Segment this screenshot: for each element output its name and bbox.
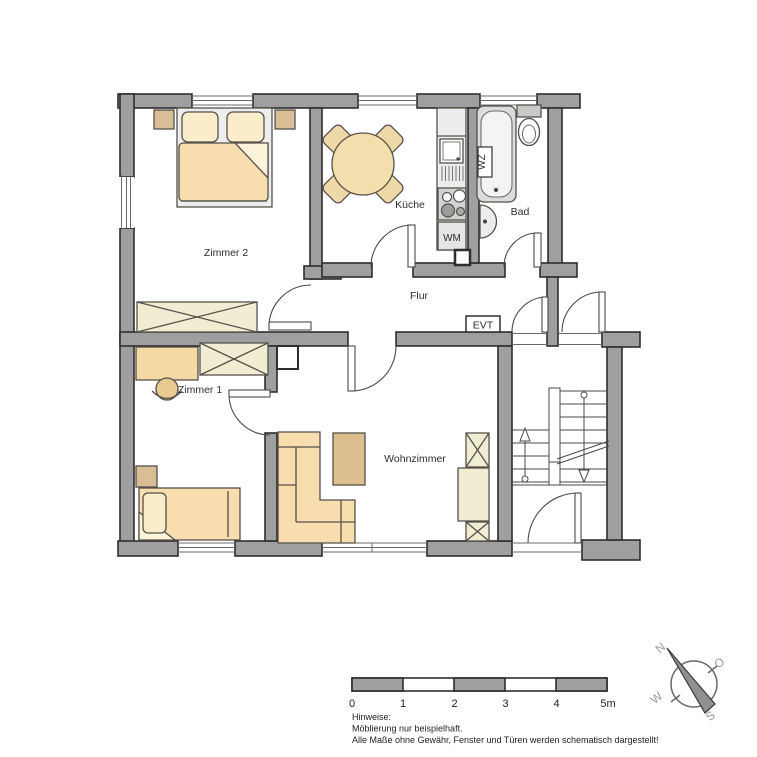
room-label-flur: Flur: [410, 290, 429, 302]
pillow: [143, 493, 166, 533]
bathroom-fixtures: [477, 105, 541, 238]
nightstand: [154, 110, 174, 129]
notes-line-1: Möblierung nur beispielhaft.: [352, 724, 463, 734]
furniture-wohnzimmer: [278, 432, 489, 543]
scale-tick-0: 0: [349, 698, 355, 710]
label-wz: WZ: [477, 154, 488, 170]
cabinet: [458, 468, 489, 521]
room-label-kueche: Küche: [395, 199, 425, 211]
compass-rose: N O W S: [648, 640, 728, 724]
nightstand: [275, 110, 295, 129]
staircase: [512, 388, 609, 485]
pillow: [182, 112, 218, 142]
floorplan-page: Zimmer 2 Küche Bad Flur Zimmer 1 Wohnzim…: [0, 0, 757, 757]
scale-tick-4: 4: [553, 698, 559, 710]
notes: Hinweise: Möblierung nur beispielhaft. A…: [352, 712, 659, 745]
duct: [455, 250, 470, 265]
room-label-zimmer2: Zimmer 2: [204, 247, 248, 259]
notes-heading: Hinweise:: [352, 712, 391, 722]
desk: [136, 347, 198, 380]
compass-north: N: [653, 640, 669, 656]
scale-tick-3: 3: [502, 698, 508, 710]
nightstand: [136, 466, 157, 487]
dining-table: [332, 133, 394, 195]
washbasin: [480, 205, 497, 238]
compass-south: S: [703, 708, 718, 724]
room-label-wohnzimmer: Wohnzimmer: [384, 453, 446, 465]
toilet: [519, 119, 540, 146]
compass-west: W: [648, 689, 666, 707]
scale-tick-2: 2: [451, 698, 457, 710]
notes-line-2: Alle Maße ohne Gewähr, Fenster und Türen…: [352, 735, 659, 745]
label-wm: WM: [443, 233, 461, 244]
label-evt: EVT: [473, 320, 494, 332]
pillow: [227, 112, 264, 142]
toilet-cistern: [517, 105, 541, 117]
compass-needle: [667, 648, 715, 713]
coffee-table: [333, 433, 365, 485]
floorplan-svg: Zimmer 2 Küche Bad Flur Zimmer 1 Wohnzim…: [0, 0, 757, 757]
scale-bar: 0 1 2 3 4 5m: [349, 678, 616, 710]
scale-tick-1: 1: [400, 698, 406, 710]
room-label-bad: Bad: [511, 206, 530, 218]
furniture-zimmer2: [137, 108, 295, 332]
room-label-zimmer1: Zimmer 1: [178, 384, 222, 396]
furniture-zimmer1: [136, 343, 268, 540]
scale-tick-5: 5m: [600, 698, 615, 710]
